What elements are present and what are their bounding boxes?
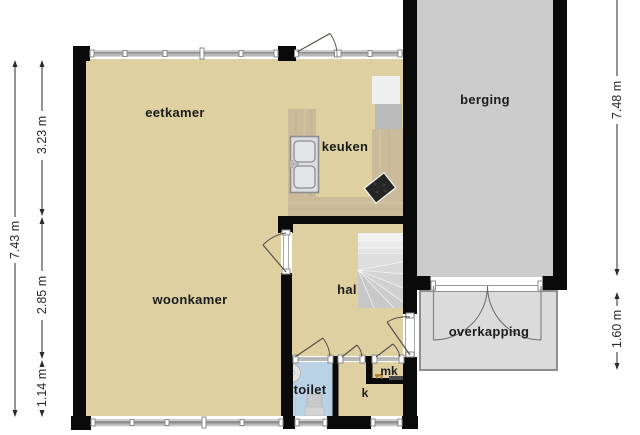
svg-text:mk: mk [380, 364, 398, 378]
svg-text:7.43 m: 7.43 m [8, 221, 22, 259]
svg-text:woonkamer: woonkamer [152, 292, 228, 307]
svg-text:toilet: toilet [294, 382, 327, 397]
svg-text:berging: berging [460, 92, 510, 107]
svg-text:k: k [362, 386, 369, 400]
svg-text:3.23 m: 3.23 m [35, 116, 49, 154]
svg-text:2.85 m: 2.85 m [35, 276, 49, 314]
svg-text:1.14 m: 1.14 m [35, 369, 49, 407]
svg-text:keuken: keuken [322, 139, 369, 154]
svg-text:eetkamer: eetkamer [145, 105, 205, 120]
svg-text:1.60 m: 1.60 m [610, 310, 624, 348]
svg-text:7.48 m: 7.48 m [610, 81, 624, 119]
svg-text:overkapping: overkapping [449, 324, 530, 339]
svg-text:hal: hal [337, 282, 357, 297]
